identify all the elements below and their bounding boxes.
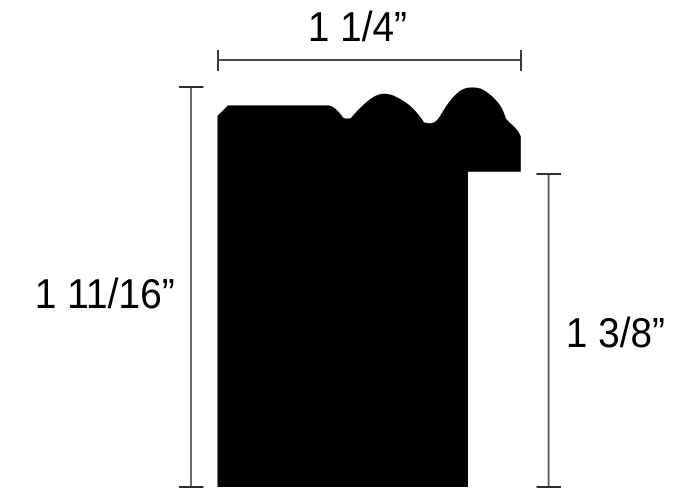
svg-text:1 1/4”: 1 1/4” [308, 3, 407, 50]
svg-text:1 11/16”: 1 11/16” [35, 270, 175, 317]
svg-text:1 3/8”: 1 3/8” [566, 309, 665, 356]
